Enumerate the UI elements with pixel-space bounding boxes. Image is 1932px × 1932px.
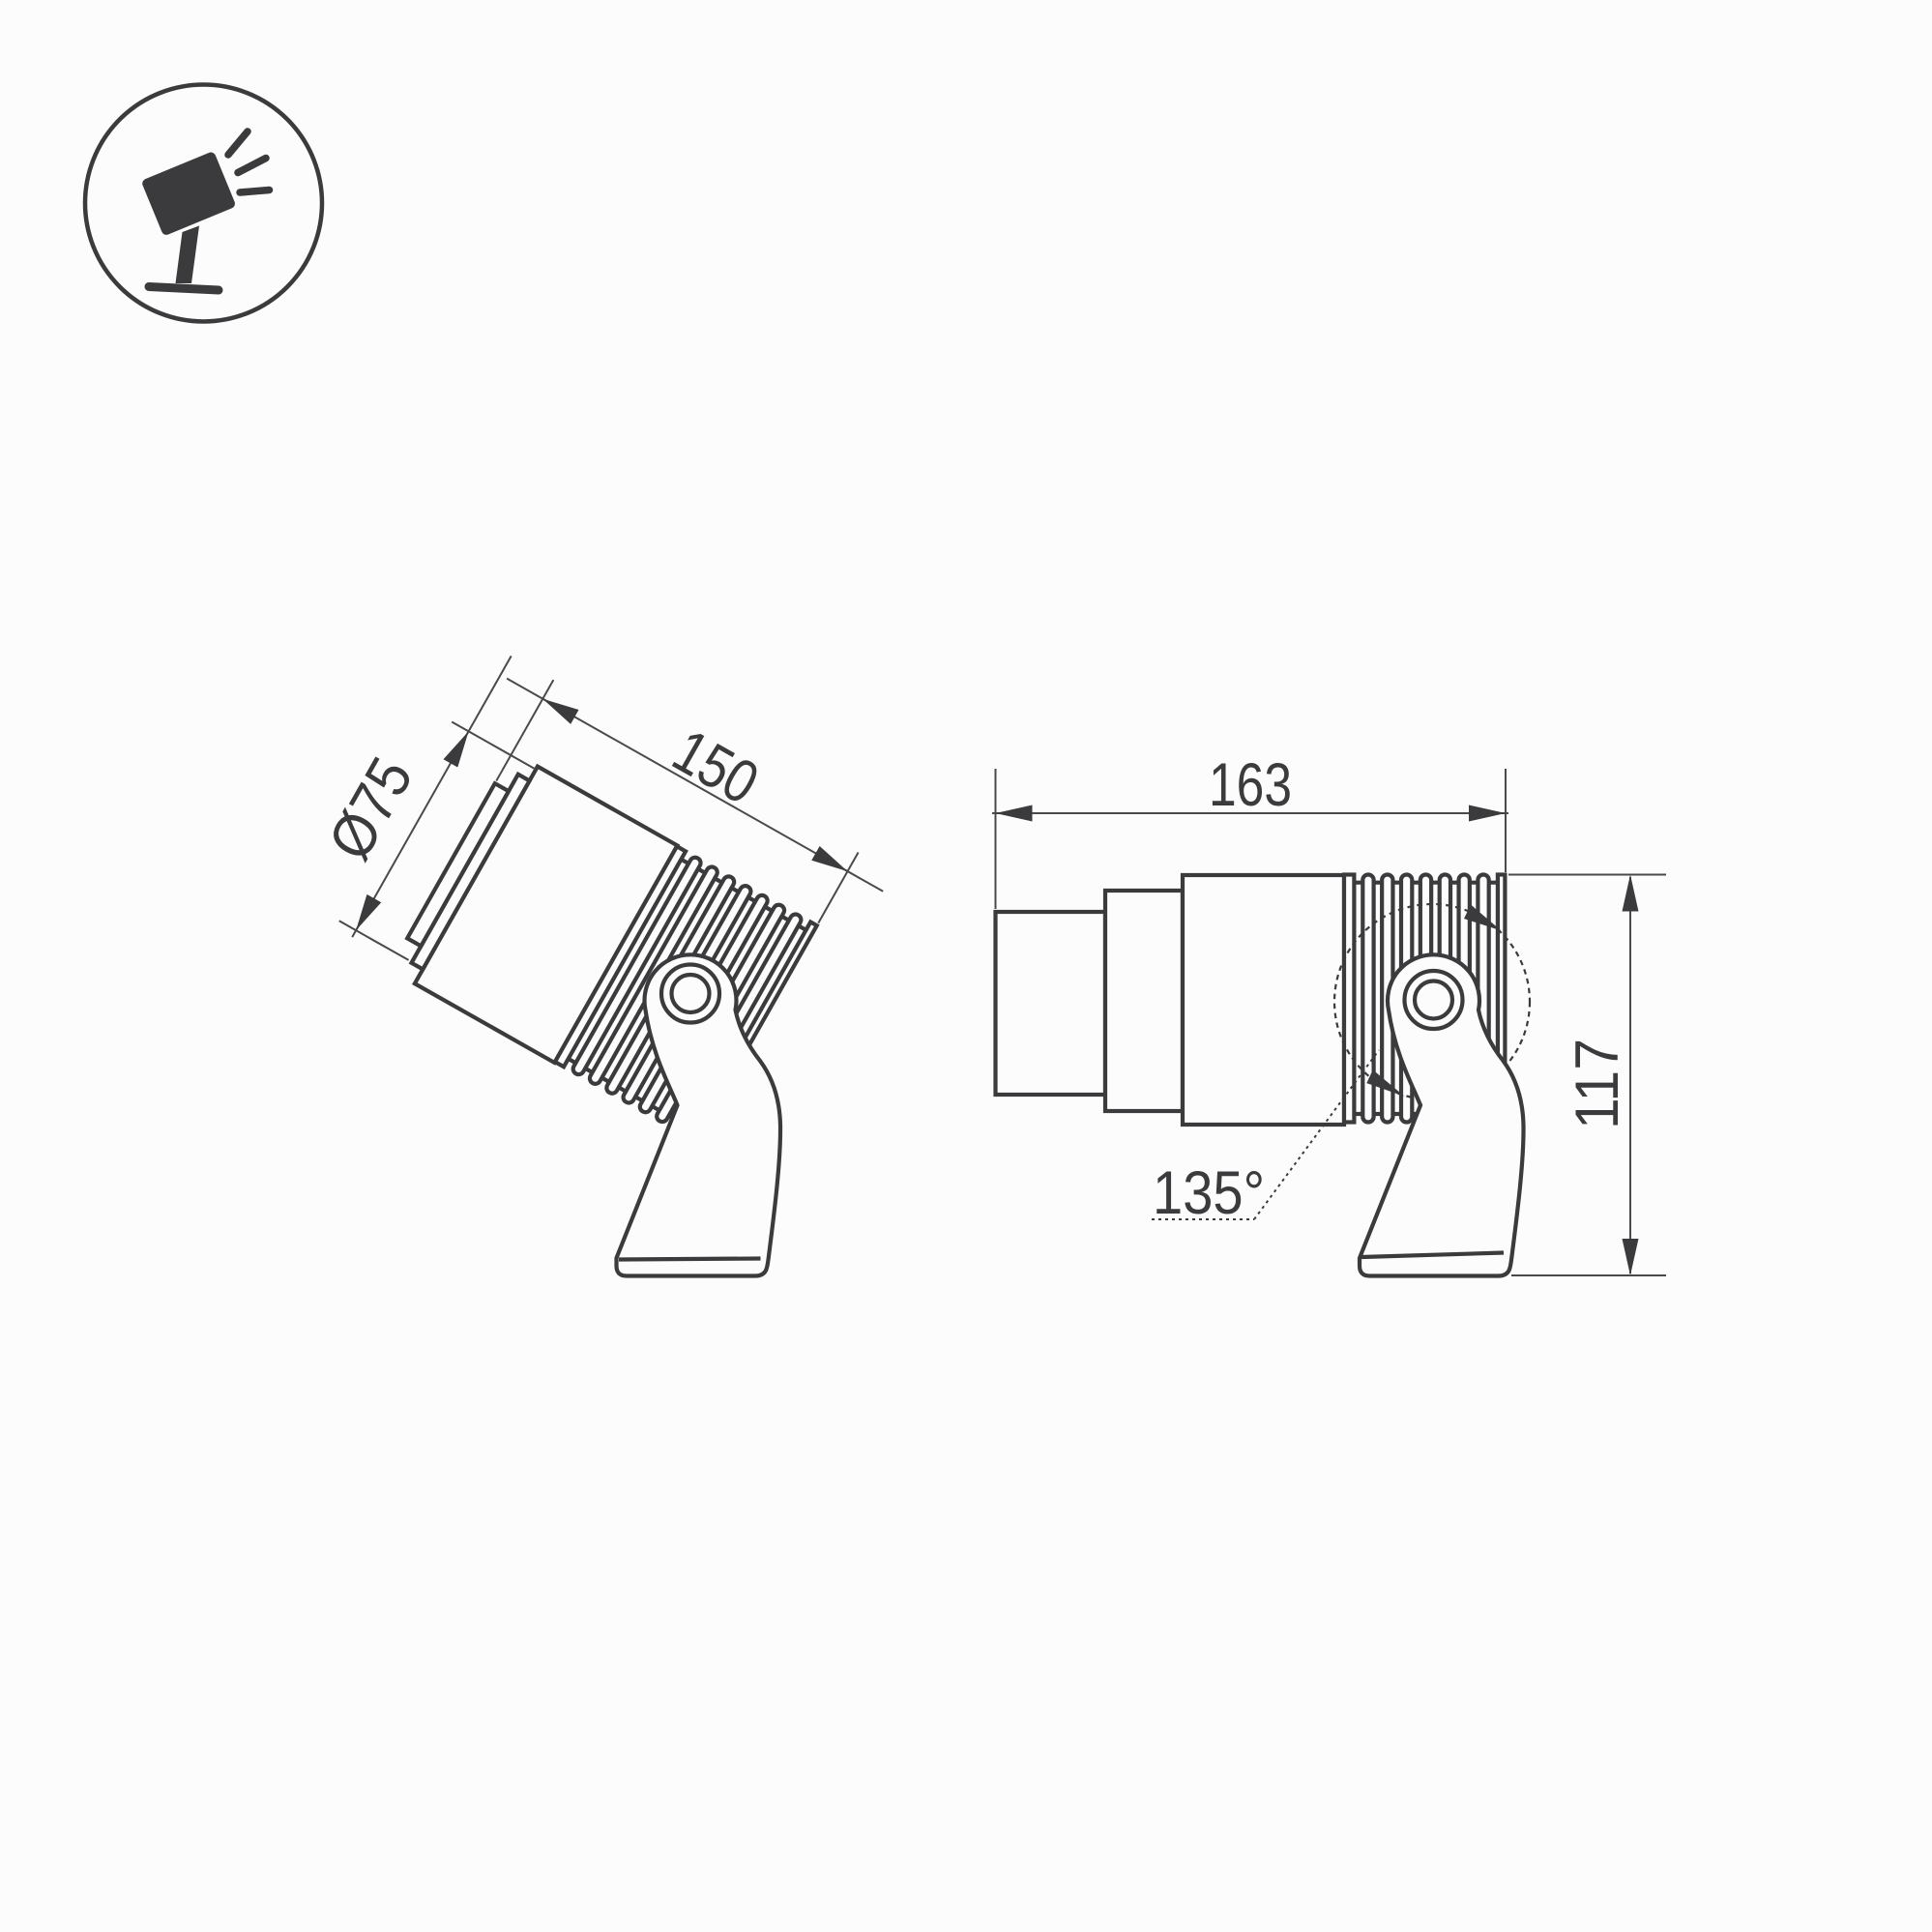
svg-text:117: 117: [1564, 1039, 1631, 1129]
svg-text:163: 163: [1209, 751, 1292, 819]
svg-text:135°: 135°: [1153, 1159, 1265, 1227]
